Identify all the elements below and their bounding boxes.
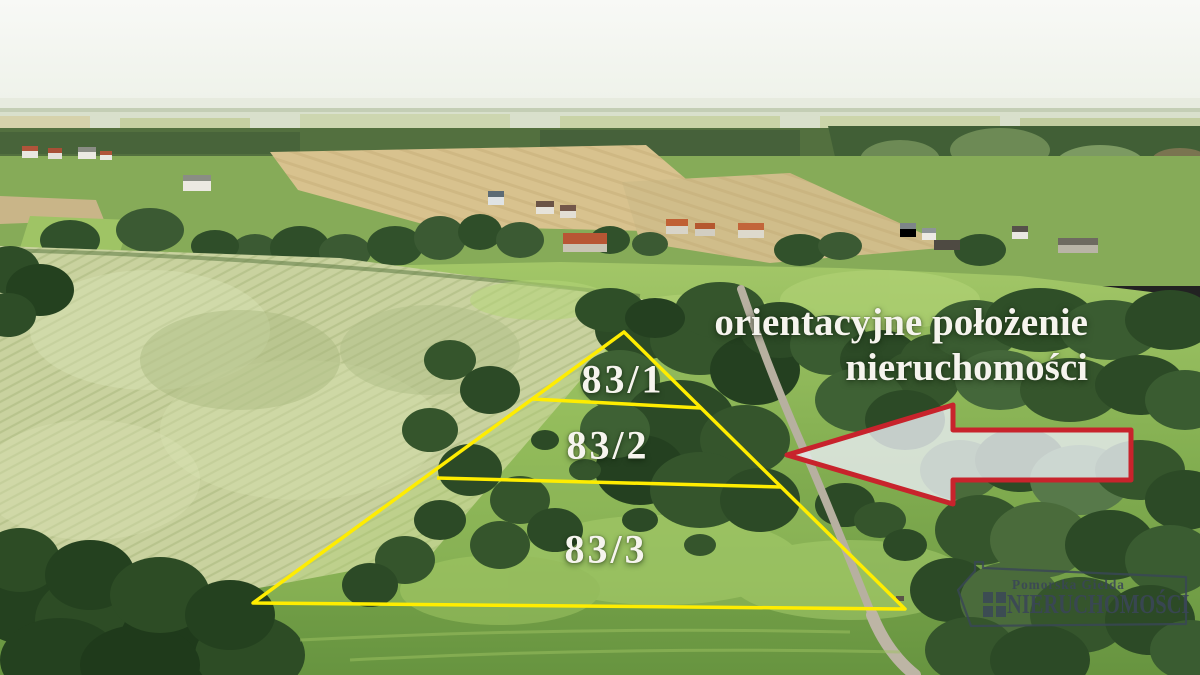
window-grid-icon	[983, 592, 1006, 617]
caption-line-2: nieruchomości	[714, 345, 1088, 390]
plot-divider-line-2	[437, 478, 781, 487]
plot-label-83-2: 83/2	[566, 422, 649, 469]
left-arrow-icon	[787, 405, 1131, 504]
plot-label-83-1: 83/1	[581, 356, 664, 403]
caption-line-1: orientacyjne położenie	[714, 300, 1088, 345]
caption: orientacyjne położenie nieruchomości	[714, 300, 1088, 390]
watermark-brand-bottom: NIERUCHOMOŚCI	[1007, 589, 1189, 620]
aerial-photo: 83/1 83/2 83/3 orientacyjne położenie ni…	[0, 0, 1200, 675]
watermark-logo: Pomorska Giełda NIERUCHOMOŚCI	[950, 556, 1195, 638]
plot-label-83-3: 83/3	[564, 526, 647, 573]
